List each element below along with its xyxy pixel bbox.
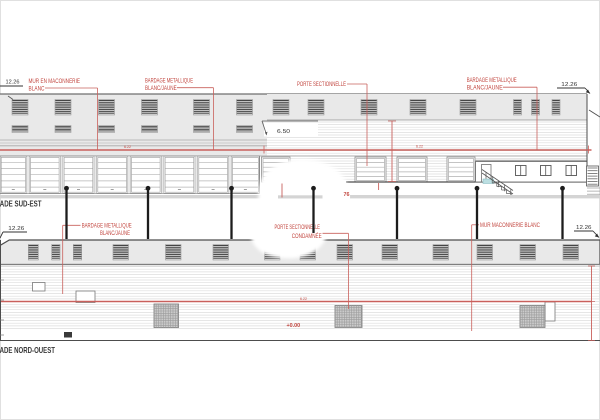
svg-text:BLANC/JAUNE: BLANC/JAUNE bbox=[100, 231, 130, 237]
svg-text:BARDAGE METALLIQUE: BARDAGE METALLIQUE bbox=[467, 78, 517, 84]
svg-text:BLANC/JAUNE: BLANC/JAUNE bbox=[145, 86, 177, 92]
svg-text:BLANC/JAUNE: BLANC/JAUNE bbox=[467, 86, 503, 92]
svg-text:6.50: 6.50 bbox=[277, 129, 290, 135]
svg-text:12.26: 12.26 bbox=[561, 82, 577, 88]
svg-text:BARDAGE METALLIQUE: BARDAGE METALLIQUE bbox=[145, 79, 193, 85]
svg-text:6.22: 6.22 bbox=[416, 145, 423, 149]
svg-text:6.22: 6.22 bbox=[124, 145, 131, 149]
svg-text:CONDAMNÉE: CONDAMNÉE bbox=[292, 233, 322, 240]
svg-text:12.26: 12.26 bbox=[8, 226, 24, 232]
svg-text:+0.00: +0.00 bbox=[287, 323, 301, 329]
svg-text:6.22: 6.22 bbox=[300, 297, 307, 301]
svg-text:PORTE SECTIONNELLE: PORTE SECTIONNELLE bbox=[297, 82, 346, 88]
svg-text:MUR MACONNERIE BLANC: MUR MACONNERIE BLANC bbox=[480, 223, 541, 229]
svg-text:BARDAGE METALLIQUE: BARDAGE METALLIQUE bbox=[82, 224, 132, 230]
svg-text:12.26: 12.26 bbox=[6, 80, 20, 86]
svg-text:MUR EN MACONNERIE: MUR EN MACONNERIE bbox=[29, 79, 81, 85]
svg-text:BLANC: BLANC bbox=[29, 86, 46, 92]
svg-text:FAÇADE SUD-EST: FAÇADE SUD-EST bbox=[0, 199, 42, 209]
svg-text:12.26: 12.26 bbox=[576, 225, 592, 231]
svg-text:76: 76 bbox=[344, 192, 350, 198]
svg-text:FAÇADE NORD-OUEST: FAÇADE NORD-OUEST bbox=[0, 345, 56, 355]
